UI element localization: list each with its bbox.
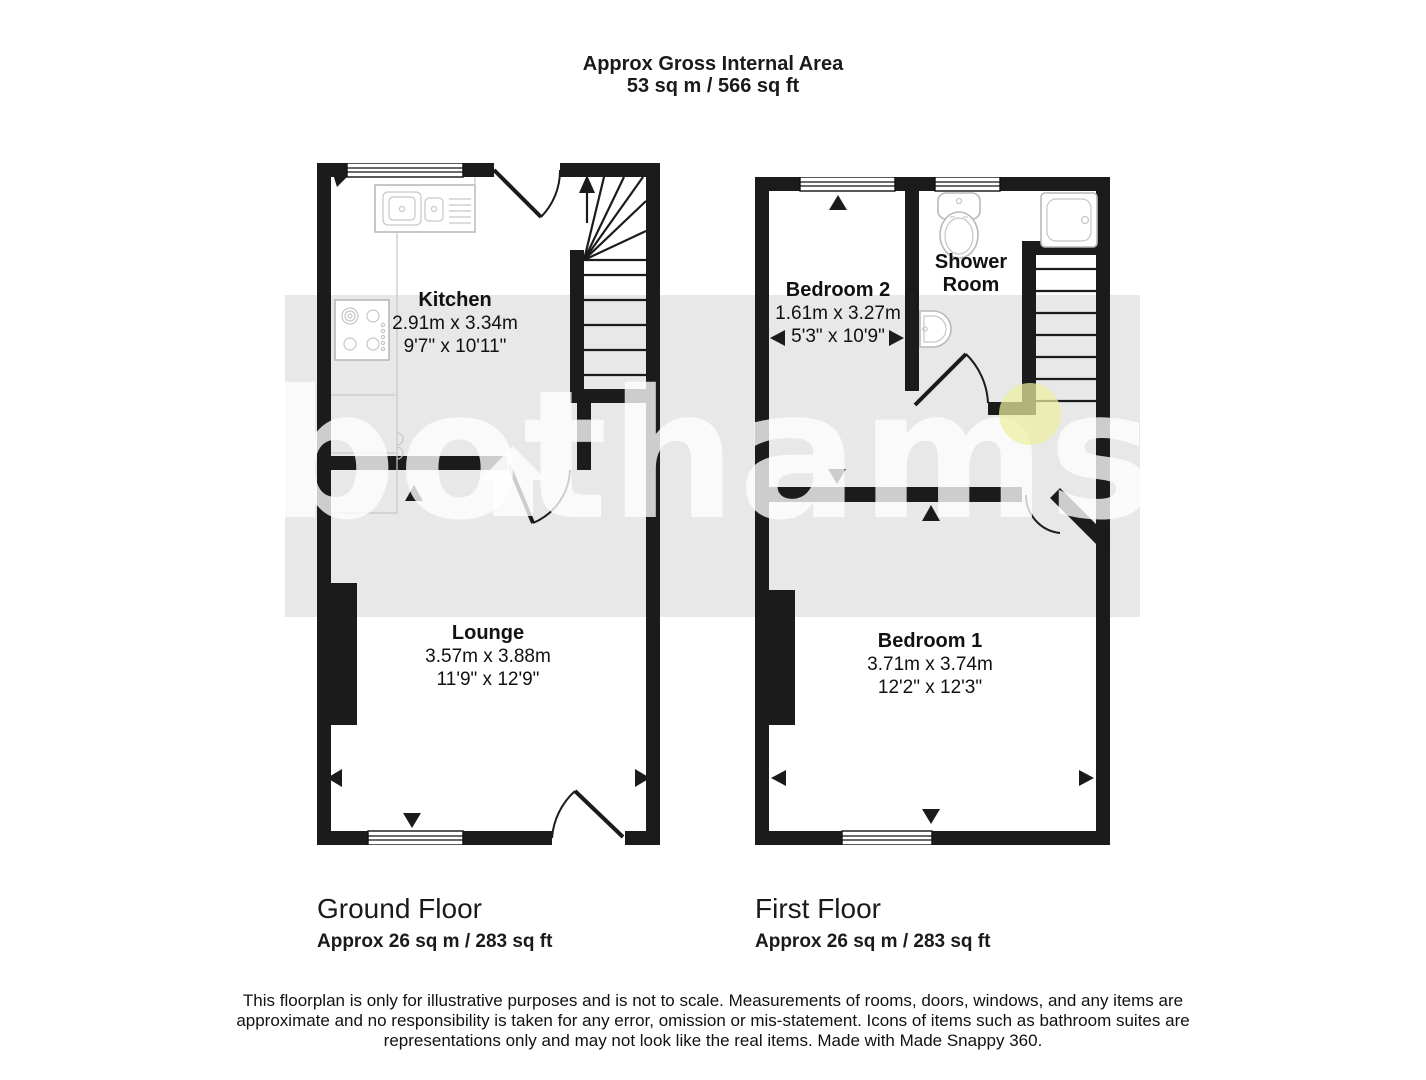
room-dims-metric: 3.57m x 3.88m <box>388 645 588 668</box>
disclaimer-text: This floorplan is only for illustrative … <box>223 991 1203 1051</box>
ground-walls <box>317 163 660 845</box>
shower-icon <box>1041 193 1097 247</box>
room-label-bedroom2: Bedroom 2 1.61m x 3.27m 5'3" x 10'9" <box>738 279 938 348</box>
room-name: Bedroom 2 <box>738 279 938 302</box>
chimney-breast <box>755 590 795 725</box>
chimney-breast <box>317 583 357 725</box>
floor-area: Approx 26 sq m / 283 sq ft <box>755 929 990 955</box>
room-dims-imperial: 5'3" x 10'9" <box>738 325 938 348</box>
room-name: Shower Room <box>916 251 1026 297</box>
room-dims-metric: 2.91m x 3.34m <box>355 312 555 335</box>
floorplan-page: Approx Gross Internal Area 53 sq m / 566… <box>0 0 1426 1080</box>
first-floor-caption: First Floor Approx 26 sq m / 283 sq ft <box>755 893 990 955</box>
room-name: Bedroom 1 <box>830 630 1030 653</box>
room-label-kitchen: Kitchen 2.91m x 3.34m 9'7" x 10'11" <box>355 289 555 358</box>
room-label-shower-room: Shower Room <box>916 251 1026 297</box>
gross-area-title: Approx Gross Internal Area <box>0 53 1426 75</box>
sink-icon <box>375 185 475 232</box>
room-label-bedroom1: Bedroom 1 3.71m x 3.74m 12'2" x 12'3" <box>830 630 1030 699</box>
floor-area: Approx 26 sq m / 283 sq ft <box>317 929 552 955</box>
room-name: Lounge <box>388 622 588 645</box>
door-arc <box>509 465 570 523</box>
measure-markers <box>327 171 650 828</box>
room-dims-metric: 3.71m x 3.74m <box>830 653 1030 676</box>
window <box>800 177 895 191</box>
stairs-icon <box>579 175 646 375</box>
door-arc <box>915 354 988 405</box>
window <box>842 831 932 845</box>
window <box>368 831 463 845</box>
camera-hotspot <box>999 383 1061 445</box>
room-dims-imperial: 11'9" x 12'9" <box>388 668 588 691</box>
window <box>935 177 1000 191</box>
window <box>347 163 463 177</box>
stairs-icon <box>1036 269 1096 401</box>
floor-name: First Floor <box>755 893 990 925</box>
room-label-lounge: Lounge 3.57m x 3.88m 11'9" x 12'9" <box>388 622 588 691</box>
room-dims-metric: 1.61m x 3.27m <box>738 302 938 325</box>
gross-area-value: 53 sq m / 566 sq ft <box>0 75 1426 97</box>
toilet-icon <box>938 193 980 258</box>
room-dims-imperial: 9'7" x 10'11" <box>355 335 555 358</box>
room-dims-imperial: 12'2" x 12'3" <box>830 676 1030 699</box>
door-arc <box>552 791 623 838</box>
door-arc <box>494 170 560 217</box>
ground-floor-plan <box>317 163 660 845</box>
ground-floor-caption: Ground Floor Approx 26 sq m / 283 sq ft <box>317 893 552 955</box>
room-name: Kitchen <box>355 289 555 312</box>
floor-name: Ground Floor <box>317 893 552 925</box>
page-title: Approx Gross Internal Area 53 sq m / 566… <box>0 53 1426 97</box>
